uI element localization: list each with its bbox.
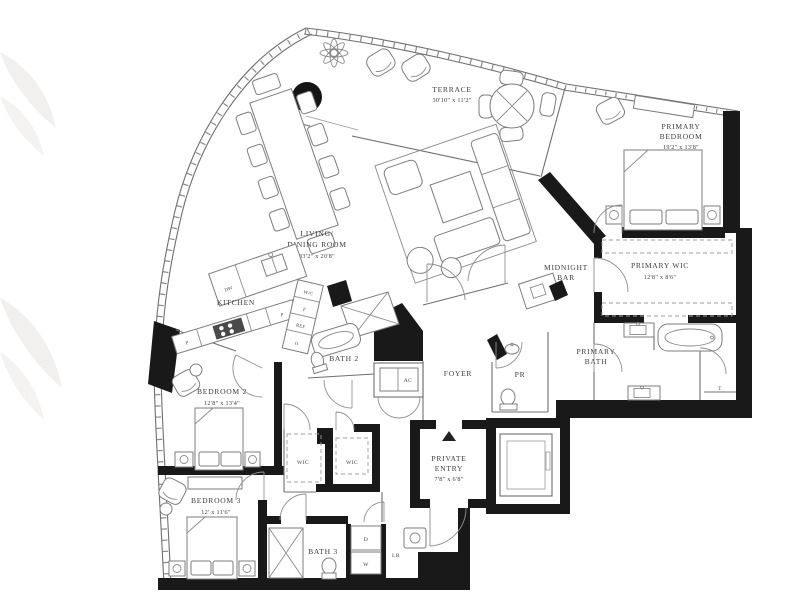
laundry-closet: D W: [351, 526, 381, 574]
midnight-bar-room: MIDNIGHT BAR: [519, 263, 588, 309]
bedroom-3-label: BEDROOM 3: [191, 496, 241, 505]
bedroom-3-dresser: [188, 477, 242, 489]
palm-watermark: [0, 52, 62, 420]
floorplan-drawing: TERRACE 30'10" x 11'2" LIVING: [0, 0, 800, 600]
terrace-lounge-chairs: [364, 32, 433, 98]
midnight-bar-label-2: BAR: [557, 273, 575, 282]
bedroom-2-bed: [195, 408, 243, 470]
primary-bath-label-2: BATH: [585, 357, 608, 366]
bedroom-3-chair: [157, 476, 189, 507]
entry-direction-icon: [442, 431, 456, 441]
dryer-label: D: [364, 537, 368, 543]
shower-valve-label: T: [718, 387, 721, 392]
terrace-label: TERRACE: [432, 85, 472, 94]
kitchen-counter: P P: [172, 300, 298, 354]
wic-right-label: WIC: [346, 460, 358, 466]
living-dining-label-1: LIVING/: [300, 229, 333, 238]
primary-bedroom-dims: 19'2" x 13'8": [663, 144, 699, 151]
private-entry-label-2: ENTRY: [435, 464, 463, 473]
primary-bedroom-console: [633, 95, 694, 117]
laundry-label: LR: [392, 553, 400, 559]
ac-label: AC: [404, 378, 413, 384]
pr-label: PR: [515, 370, 526, 379]
primary-wic-dims: 12'8" x 8'6": [644, 274, 677, 281]
midnight-bar-label-1: MIDNIGHT: [544, 263, 588, 272]
potted-plant-icon: [320, 39, 348, 67]
bath-vanity-bottom: [628, 386, 660, 400]
ac-closet: AC: [374, 363, 423, 397]
primary-wic-room: PRIMARY WIC 12'8" x 8'6": [602, 240, 732, 316]
pr-sink: [505, 343, 519, 354]
bedroom-2-dims: 12'8" x 13'4": [204, 400, 240, 407]
laundry-sink: [404, 528, 426, 548]
terrace-dims: 30'10" x 11'2": [432, 97, 471, 104]
wic-left-label: WIC: [297, 460, 309, 466]
primary-bedroom-label-1: PRIMARY: [661, 122, 700, 131]
kitchen-label: KITCHEN: [217, 298, 255, 307]
bedroom-3-bed: [187, 517, 237, 579]
floorplan-page: TERRACE 30'10" x 11'2" LIVING: [0, 0, 800, 600]
elevator: [500, 434, 552, 496]
bedroom-3-room: BEDROOM 3 12' x 11'6": [157, 476, 255, 579]
bath-3-room: BATH 3: [269, 528, 338, 579]
bedroom-3-side-table: [160, 503, 172, 515]
primary-bedroom-room: PRIMARY BEDROOM 19'2" x 13'8": [594, 95, 720, 230]
primary-bed: [624, 150, 702, 230]
living-dining-dims: 33'2" x 20'8": [299, 253, 335, 260]
bedroom-2-side-table: [190, 364, 202, 376]
bath-3-toilet: [322, 558, 336, 579]
bedroom-2-room: BEDROOM 2 12'8" x 13'4": [170, 364, 260, 470]
bedroom-3-dims: 12' x 11'6": [201, 509, 231, 516]
private-entry-dims: 7'8" x 6'8": [434, 476, 463, 483]
private-entry-room: PRIVATE ENTRY 7'8" x 6'8": [431, 431, 466, 483]
primary-bedroom-label-2: BEDROOM: [660, 132, 703, 141]
washer-label: W: [363, 562, 369, 568]
bath-3-label: BATH 3: [308, 547, 338, 556]
bedroom-2-label: BEDROOM 2: [197, 387, 247, 396]
terrace-dining-set: [479, 70, 557, 143]
primary-wic-label: PRIMARY WIC: [631, 261, 689, 270]
foyer-label: FOYER: [444, 369, 473, 378]
primary-shower: T: [718, 387, 721, 392]
kitchen-island: DW: [209, 244, 307, 306]
pr-toilet: [500, 389, 517, 410]
private-entry-label-1: PRIVATE: [431, 454, 466, 463]
primary-bedroom-chair: [594, 95, 626, 126]
sofa-sectional-set: [374, 124, 539, 290]
bath-2-label: BATH 2: [329, 354, 359, 363]
bathtub: [658, 324, 722, 351]
bath-vanity-top: [624, 323, 654, 337]
bath-3-shower: [269, 528, 303, 578]
kitchen-room: DW P P W/C F REF O KITCHEN: [172, 244, 324, 354]
